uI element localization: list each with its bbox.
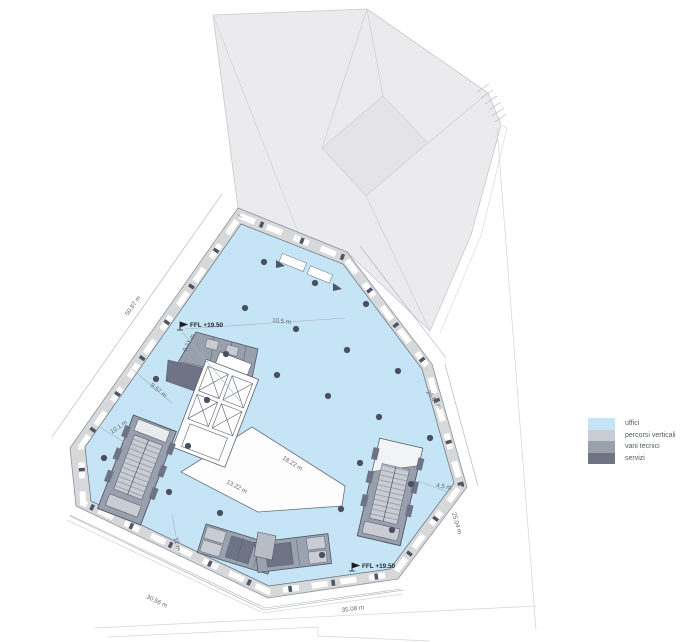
column-dot: [389, 527, 395, 533]
column-dot: [223, 351, 229, 357]
column-dot: [166, 489, 172, 495]
column-dot: [274, 372, 280, 378]
legend-label: percorsi verticali: [615, 430, 676, 442]
level-label: FFL +19.50: [190, 322, 224, 329]
column-dot: [338, 506, 344, 512]
column-dot: [217, 510, 223, 516]
legend-swatch-vani-tecnici: [588, 441, 615, 453]
column-dot: [395, 368, 401, 374]
legend-swatch-percorsi-verticali: [588, 430, 615, 442]
dimension-label: 25.04 m: [450, 512, 463, 535]
column-dot: [325, 393, 331, 399]
column-dot: [204, 397, 210, 403]
legend-label: vani tecnici: [615, 441, 660, 453]
column-dot: [363, 301, 369, 307]
column-dot: [101, 455, 107, 461]
column-dot: [408, 481, 414, 487]
legend-swatch-uffici: [588, 418, 615, 430]
column-dot: [242, 305, 248, 311]
dimension-label: 30.56 m: [145, 594, 168, 610]
level-label: FFL +19.50: [362, 563, 396, 570]
column-dot: [261, 259, 267, 265]
legend-item-uffici: uffici: [588, 418, 676, 430]
legend-item-servizi: servizi: [588, 453, 676, 465]
dimension-label: 50.87 m: [124, 295, 143, 317]
legend-label: servizi: [615, 453, 645, 465]
legend: uffici percorsi verticali vani tecnici s…: [588, 418, 676, 464]
column-dot: [293, 326, 299, 332]
column-dot: [153, 376, 159, 382]
column-dot: [185, 443, 191, 449]
column-dot: [344, 347, 350, 353]
column-dot: [376, 414, 382, 420]
column-dot: [312, 280, 318, 286]
legend-swatch-servizi: [588, 453, 615, 465]
dimension-label: 35.08 m: [341, 604, 364, 614]
column-dot: [357, 460, 363, 466]
floor-plan-canvas: 50.87 m10.5 m9.71 m9.57 m10.1 m26.89 m18…: [0, 0, 700, 642]
column-dot: [319, 552, 325, 558]
column-dot: [427, 435, 433, 441]
floor-plan-page: 50.87 m10.5 m9.71 m9.57 m10.1 m26.89 m18…: [0, 0, 700, 642]
legend-label: uffici: [615, 418, 639, 430]
legend-item-vani-tecnici: vani tecnici: [588, 441, 676, 453]
legend-item-percorsi-verticali: percorsi verticali: [588, 430, 676, 442]
